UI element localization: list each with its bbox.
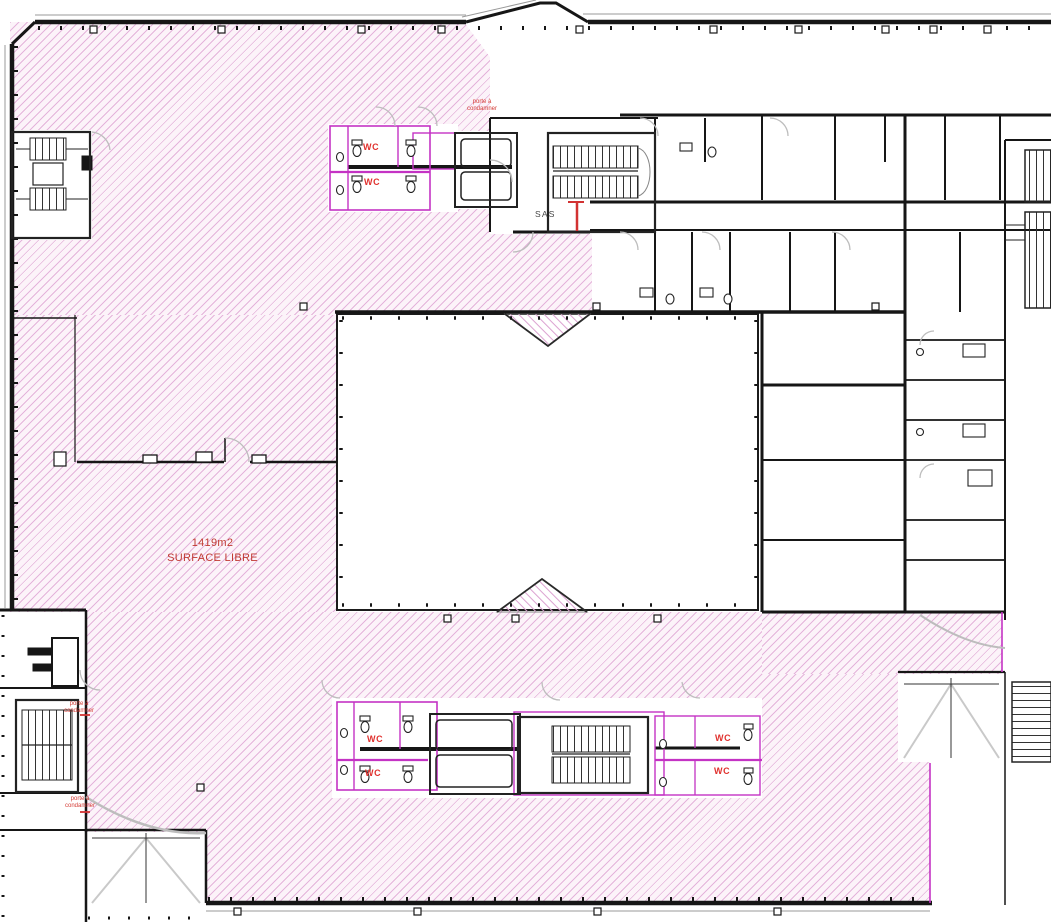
wc-label-top-2: WC (364, 177, 380, 187)
wc-label-bottom-center-1: WC (367, 734, 383, 744)
note-line-2: condamner (460, 106, 504, 113)
condemned-door-note-left-lower: porte à condamner (58, 796, 102, 809)
floor-plan-canvas: 1419m2 SURFACE LIBRE SAS WC WC WC WC WC … (0, 0, 1051, 922)
free-surface-hatch-below-sas (488, 232, 592, 314)
wc-label-bottom-center-2: WC (365, 768, 381, 778)
wc-label-bottom-right-2: WC (714, 766, 730, 776)
free-surface-hatch-left (10, 315, 337, 612)
free-surface-hatch-bottom-right (762, 612, 1002, 674)
sas-room-label: SAS (535, 209, 556, 219)
free-surface-area: 1419m2 (192, 537, 234, 549)
free-surface-hatch-top (10, 22, 490, 315)
note-line-2: condamner (57, 708, 101, 715)
courtyard-chevrons (497, 314, 590, 612)
free-surface-label: 1419m2 SURFACE LIBRE (140, 536, 285, 566)
wc-label-bottom-right-1: WC (715, 733, 731, 743)
free-surface-name: SURFACE LIBRE (140, 551, 285, 566)
condemned-door-note-top: porte à condamner (460, 99, 504, 112)
condemned-door-note-left-upper: porte à condamner (57, 701, 101, 714)
note-line-2: condamner (58, 803, 102, 810)
wc-label-top-1: WC (363, 142, 379, 152)
